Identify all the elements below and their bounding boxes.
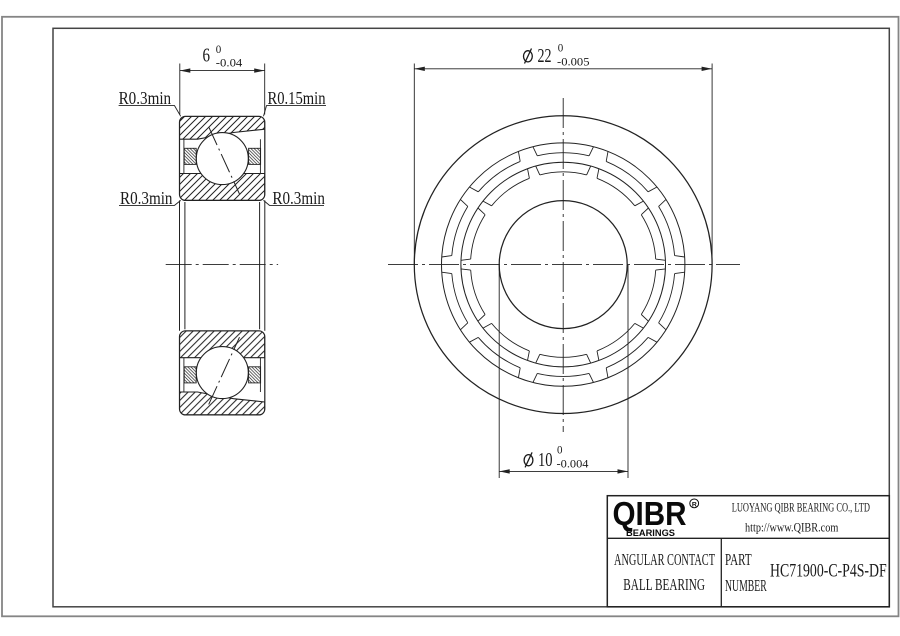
svg-text:HC71900-C-P4S-DF: HC71900-C-P4S-DF [770,561,887,582]
svg-text:BEARINGS: BEARINGS [626,528,675,538]
svg-text:R0.3min: R0.3min [120,188,173,208]
svg-text:BALL BEARING: BALL BEARING [623,575,705,594]
svg-text:0: 0 [557,445,563,457]
svg-text:ANGULAR CONTACT: ANGULAR CONTACT [614,550,715,569]
svg-text:10: 10 [538,449,553,471]
svg-text:-0.04: -0.04 [216,57,243,69]
svg-text:LUOYANG QIBR BEARING CO., LTD: LUOYANG QIBR BEARING CO., LTD [732,500,870,515]
svg-text:R: R [692,502,697,509]
svg-text:R0.3min: R0.3min [272,188,325,208]
svg-text:22: 22 [538,45,552,67]
svg-text:-0.005: -0.005 [557,57,590,69]
svg-text:http://www.QIBR.com: http://www.QIBR.com [745,520,838,535]
svg-text:0: 0 [558,42,564,54]
svg-text:PART: PART [725,550,752,569]
svg-text:6: 6 [203,45,211,67]
svg-text:NUMBER: NUMBER [725,576,767,595]
svg-text:-0.004: -0.004 [557,459,589,471]
svg-text:0: 0 [216,44,222,56]
